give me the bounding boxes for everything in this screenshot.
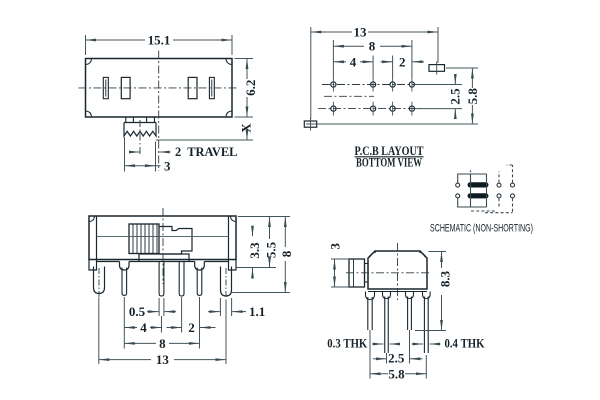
svg-text:4: 4 [350,54,357,69]
svg-text:8.3: 8.3 [438,270,453,287]
svg-text:8: 8 [279,250,294,257]
svg-text:SCHEMATIC (NON-SHORTING): SCHEMATIC (NON-SHORTING) [430,223,533,235]
svg-text:X: X [239,123,254,133]
svg-text:0.5: 0.5 [129,304,146,319]
svg-text:2: 2 [188,320,195,335]
svg-text:2: 2 [399,54,406,69]
svg-text:2.5: 2.5 [448,88,463,105]
svg-text:2.5: 2.5 [388,351,405,366]
svg-text:0.3 THK: 0.3 THK [327,336,368,351]
svg-text:8: 8 [159,336,166,351]
svg-text:3: 3 [164,159,171,174]
svg-text:4: 4 [140,320,147,335]
svg-text:3.3: 3.3 [247,242,262,259]
svg-text:BOTTOM VIEW: BOTTOM VIEW [356,154,422,169]
svg-text:13: 13 [354,25,368,40]
svg-text:8: 8 [369,39,376,54]
svg-text:5.8: 5.8 [465,88,480,105]
svg-text:15.1: 15.1 [148,33,171,48]
svg-text:5.5: 5.5 [264,241,279,258]
svg-text:3: 3 [327,242,342,249]
svg-text:5.8: 5.8 [388,366,405,381]
svg-text:1.1: 1.1 [249,304,265,319]
svg-text:2 TRAVEL: 2 TRAVEL [175,144,238,159]
svg-text:6.2: 6.2 [243,80,258,96]
svg-text:0.4 THK: 0.4 THK [445,336,486,351]
svg-text:13: 13 [156,352,170,367]
